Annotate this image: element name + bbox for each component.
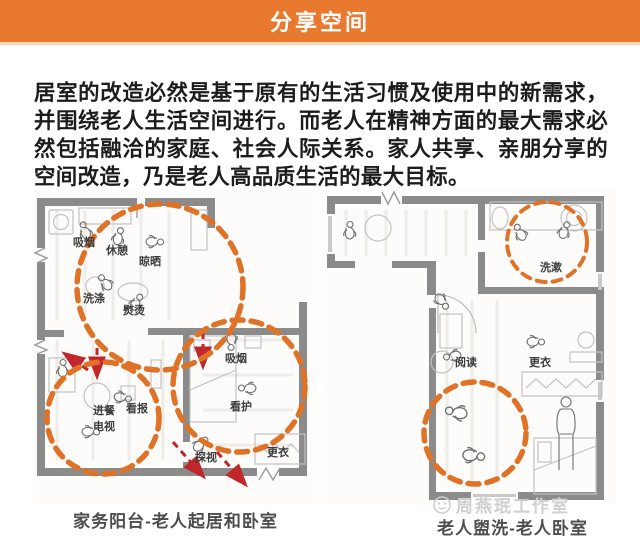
furniture bbox=[365, 202, 602, 494]
label-washing: 洗漱 bbox=[540, 260, 562, 274]
intro-paragraph: 居室的改造必然是基于原有的生活习惯及使用中的新需求，并围绕老人生活空间进行。而老… bbox=[34, 79, 608, 191]
label-newspaper: 看报 bbox=[126, 401, 149, 415]
label-dressing-left: 更衣 bbox=[267, 445, 290, 459]
label-rest: 休憩 bbox=[105, 243, 128, 257]
label-dressing-right: 更衣 bbox=[529, 355, 552, 369]
label-smoking-balcony: 吸烟 bbox=[73, 235, 95, 249]
label-caregiving: 看护 bbox=[230, 399, 252, 413]
floor-texture bbox=[346, 210, 497, 480]
right-plan-caption: 老人盥洗-老人卧室 bbox=[405, 514, 620, 539]
studio-watermark: 周燕珉工作室 bbox=[432, 492, 570, 517]
right-floor-plan-figure: 洗漱 阅读 更衣 bbox=[322, 190, 617, 505]
label-reading: 阅读 bbox=[455, 355, 477, 369]
article-page: 分享空间 居室的改造必然是基于原有的生活习惯及使用中的新需求，并围绕老人生活空间… bbox=[0, 0, 640, 546]
section-banner: 分享空间 bbox=[0, 0, 640, 45]
label-dining: 进餐 bbox=[93, 403, 116, 417]
label-laundry: 洗涤 bbox=[83, 291, 105, 305]
section-title: 分享空间 bbox=[270, 5, 370, 37]
label-drying: 晾晒 bbox=[139, 254, 161, 268]
people-figures bbox=[344, 220, 575, 470]
label-tv: 电视 bbox=[93, 419, 115, 433]
wall-break-marks bbox=[382, 192, 400, 204]
label-visiting: 探视 bbox=[195, 450, 217, 464]
standing-figure bbox=[557, 397, 575, 470]
studio-logo-icon bbox=[432, 495, 452, 515]
label-ironing: 熨烫 bbox=[123, 303, 146, 317]
label-smoking-bedroom: 吸烟 bbox=[225, 351, 247, 365]
activity-zone-circle-living bbox=[47, 362, 159, 474]
left-plan-caption: 家务阳台-老人起居和卧室 bbox=[33, 507, 318, 532]
watermark-text: 周燕珉工作室 bbox=[456, 492, 570, 517]
activity-zone-circle-bedroom bbox=[424, 382, 526, 484]
left-floor-plan-figure: 吸烟 休憩 晾晒 洗涤 熨烫 进餐 看报 电视 吸烟 看护 探视 更衣 bbox=[33, 190, 318, 505]
